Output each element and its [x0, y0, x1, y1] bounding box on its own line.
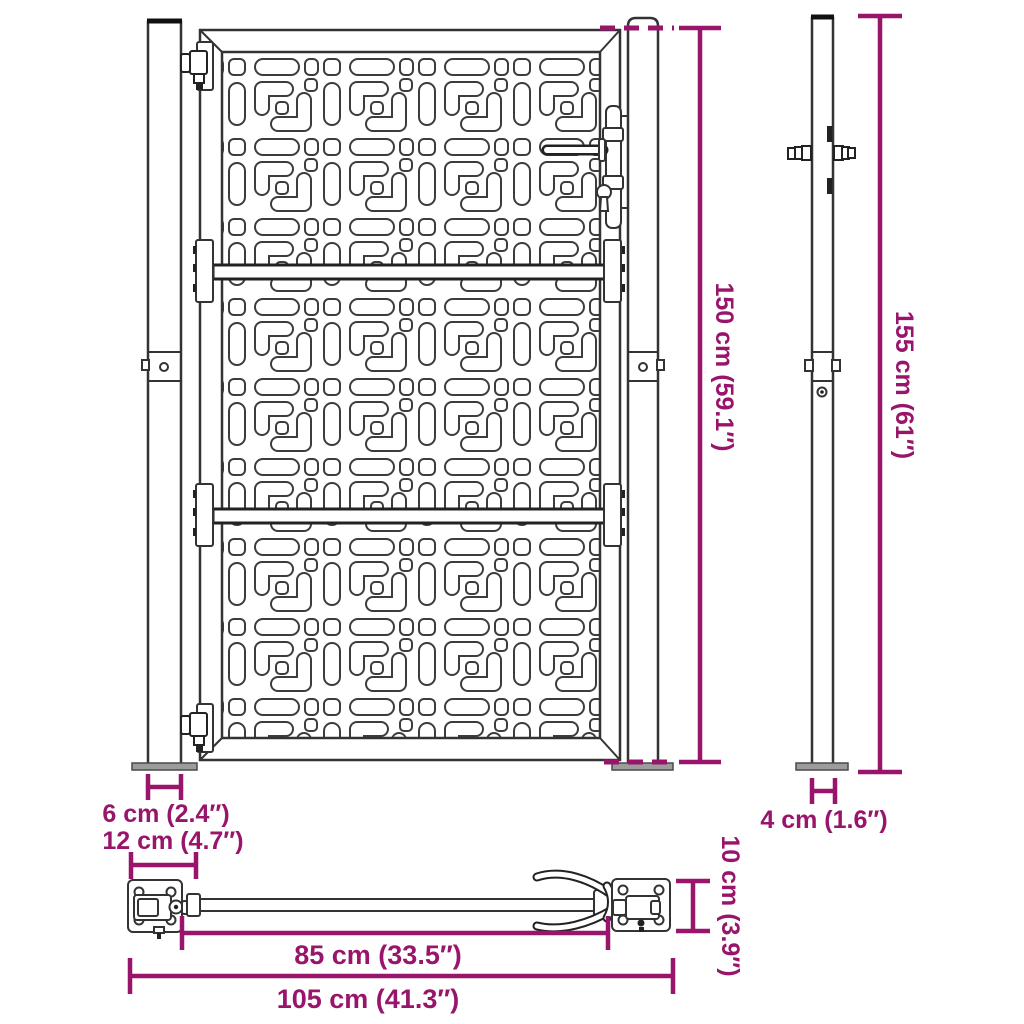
front-left-post — [142, 21, 182, 764]
gate-front-view — [181, 30, 631, 760]
dim-gate-height-label: 150 cm (59.1″) — [710, 282, 738, 451]
hinge-bolt-top — [181, 51, 207, 89]
dim-post-height-label: 155 cm (61″) — [890, 311, 918, 459]
latch-right-plate — [612, 879, 670, 932]
diagram-svg: 150 cm (59.1″) 155 cm (61″) 6 cm (2.4″) … — [0, 0, 1024, 1024]
side-base-plate — [796, 763, 848, 770]
dim-bar-length-label: 85 cm (33.5″) — [294, 940, 462, 970]
dim-post-base-width-label: 12 cm (4.7″) — [102, 827, 243, 855]
hinge-bolt-bottom — [181, 713, 207, 751]
dim-total-width-label: 105 cm (41.3″) — [277, 984, 460, 1014]
front-base-plates — [132, 763, 673, 770]
gate-pattern-panels — [222, 52, 600, 738]
side-view-post — [788, 17, 855, 770]
dim-side-post-depth-label: 4 cm (1.6″) — [760, 806, 887, 834]
front-right-post — [628, 18, 664, 764]
dim-latch-plate-height-label: 10 cm (3.9″) — [716, 835, 744, 976]
dim-post-width-label: 6 cm (2.4″) — [102, 800, 229, 828]
latch-bar-assembly — [128, 874, 670, 939]
latch-bar — [191, 899, 594, 911]
dimension-diagram: 150 cm (59.1″) 155 cm (61″) 6 cm (2.4″) … — [0, 0, 1024, 1024]
